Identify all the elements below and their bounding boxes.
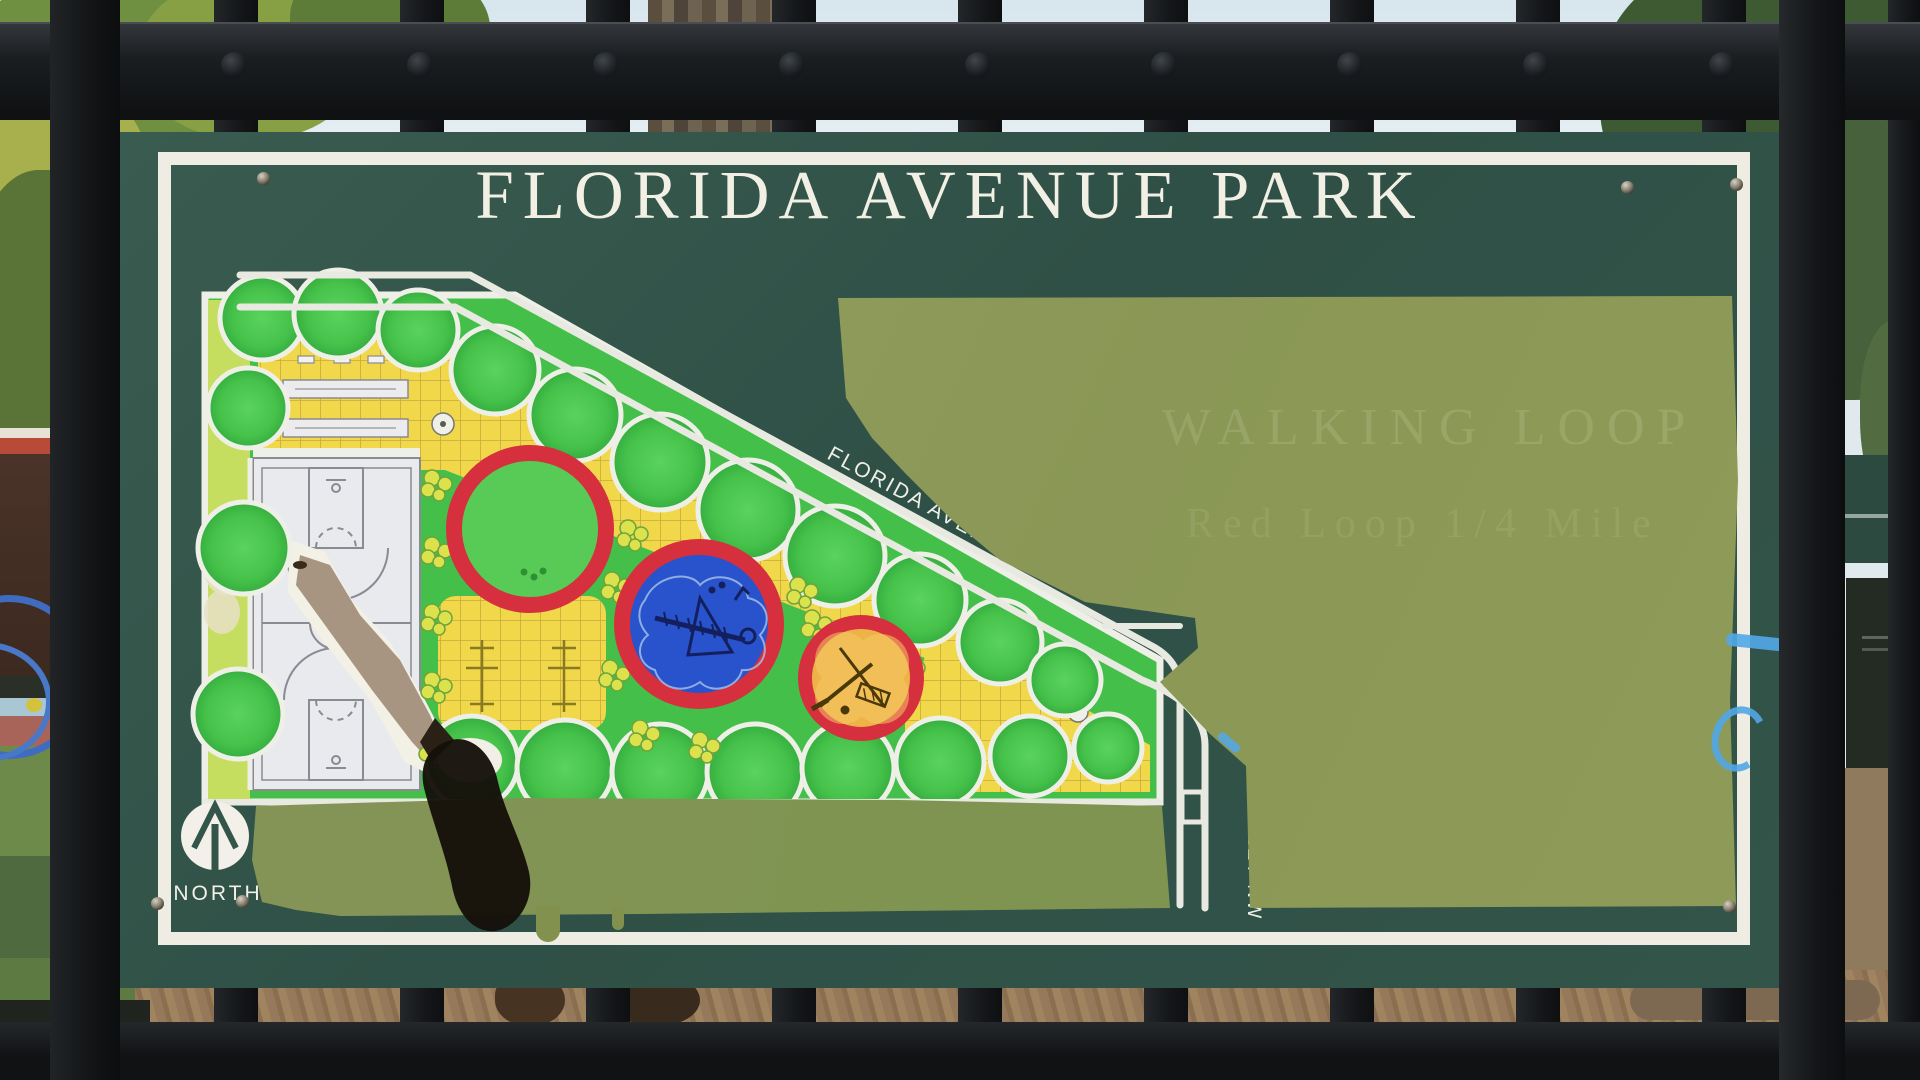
fence-post-left	[50, 0, 120, 1080]
fence-post-right	[1779, 0, 1845, 1080]
screw-icon	[151, 897, 164, 910]
north-arrow-icon	[176, 798, 260, 876]
screw-icon	[1723, 900, 1736, 913]
park-sign-photo: FLORIDA AVENUE PARK	[0, 0, 1920, 1080]
screw-icon	[1621, 181, 1634, 194]
north-label: NORTH	[163, 882, 273, 906]
screw-icon	[1730, 178, 1743, 191]
screw-icon	[236, 895, 249, 908]
ink-blotch	[0, 0, 1920, 1080]
screw-icon	[257, 172, 270, 185]
